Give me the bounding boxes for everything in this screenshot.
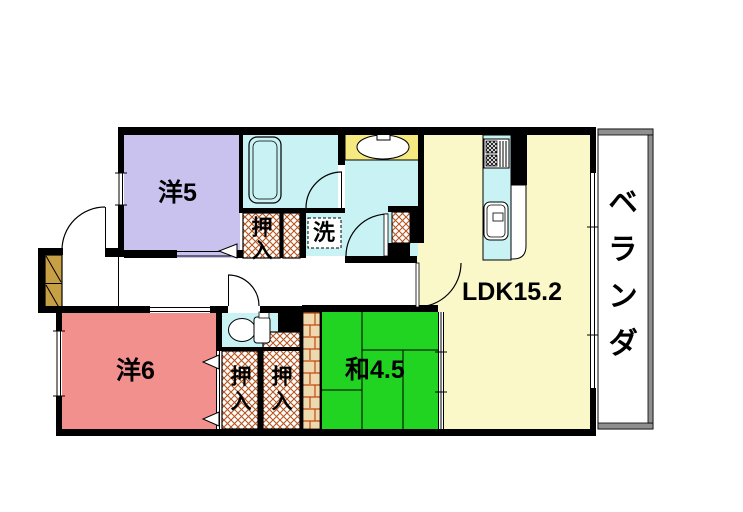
kitchen-sink-icon bbox=[484, 202, 508, 240]
wall-segment bbox=[124, 250, 177, 258]
washroom-closet-cell bbox=[392, 212, 410, 243]
counter-edge bbox=[511, 185, 526, 259]
wall-segment bbox=[590, 135, 596, 173]
room-label-veranda: ベランダ bbox=[604, 186, 634, 374]
wall-segment bbox=[345, 256, 417, 263]
closet-label-lower-right: 押入 bbox=[270, 365, 291, 415]
wall-segment bbox=[105, 248, 124, 257]
veranda-rail-top bbox=[598, 129, 653, 135]
window bbox=[119, 173, 123, 205]
wall-segment bbox=[260, 306, 302, 313]
veranda-rail-right bbox=[648, 135, 653, 423]
wall-segment bbox=[216, 347, 302, 351]
laundry-label: 洗 bbox=[313, 222, 335, 244]
wall-segment bbox=[278, 313, 302, 332]
sliding-door bbox=[150, 308, 210, 312]
wall-segment bbox=[118, 127, 124, 173]
wall-segment bbox=[240, 208, 345, 213]
pipe-space bbox=[303, 312, 320, 429]
wall-segment bbox=[258, 351, 263, 429]
wall-segment bbox=[280, 213, 283, 258]
wall-segment bbox=[222, 306, 228, 313]
room-label-ldk: LDK15.2 bbox=[462, 280, 562, 305]
wall-segment bbox=[118, 127, 596, 135]
wall-segment bbox=[38, 248, 63, 255]
window bbox=[591, 173, 595, 388]
floorplan: 洋5 洋6 和4.5 LDK15.2 ベランダ 押入 押入 押入 洗 bbox=[0, 0, 743, 512]
wall-segment bbox=[418, 133, 424, 213]
veranda-rail-bottom bbox=[598, 423, 653, 429]
wall-segment bbox=[511, 135, 527, 185]
wall-segment bbox=[300, 213, 306, 258]
room-label-western6: 洋6 bbox=[116, 359, 155, 384]
wall-segment bbox=[320, 312, 322, 429]
closet-label-upper: 押入 bbox=[250, 216, 271, 262]
closet-label-lower-left: 押入 bbox=[229, 365, 250, 415]
wall-segment bbox=[388, 206, 424, 212]
wall-segment bbox=[62, 306, 150, 313]
washroom-door-leaf bbox=[384, 214, 388, 256]
closet-upper-small-cell bbox=[283, 213, 300, 258]
wall-segment bbox=[56, 306, 62, 331]
fusuma-partition bbox=[439, 312, 444, 429]
wall-segment bbox=[410, 212, 424, 243]
wall-segment bbox=[300, 306, 303, 429]
entrance-door-arc bbox=[62, 207, 105, 250]
wall-segment bbox=[338, 133, 345, 165]
wall-segment bbox=[216, 313, 222, 351]
ldk-door-leaf bbox=[416, 263, 419, 307]
wall-segment bbox=[590, 388, 596, 436]
wall-segment bbox=[239, 133, 243, 213]
washbasin-icon bbox=[345, 132, 419, 160]
room-label-japanese45: 和4.5 bbox=[345, 358, 405, 383]
room-label-western5: 洋5 bbox=[158, 181, 197, 206]
wall-segment bbox=[38, 248, 45, 313]
window bbox=[57, 331, 61, 396]
shoe-cabinet-icon bbox=[45, 255, 62, 312]
wall-segment bbox=[210, 306, 222, 313]
toilet-door-arc bbox=[228, 275, 259, 306]
wall-segment bbox=[56, 429, 596, 436]
